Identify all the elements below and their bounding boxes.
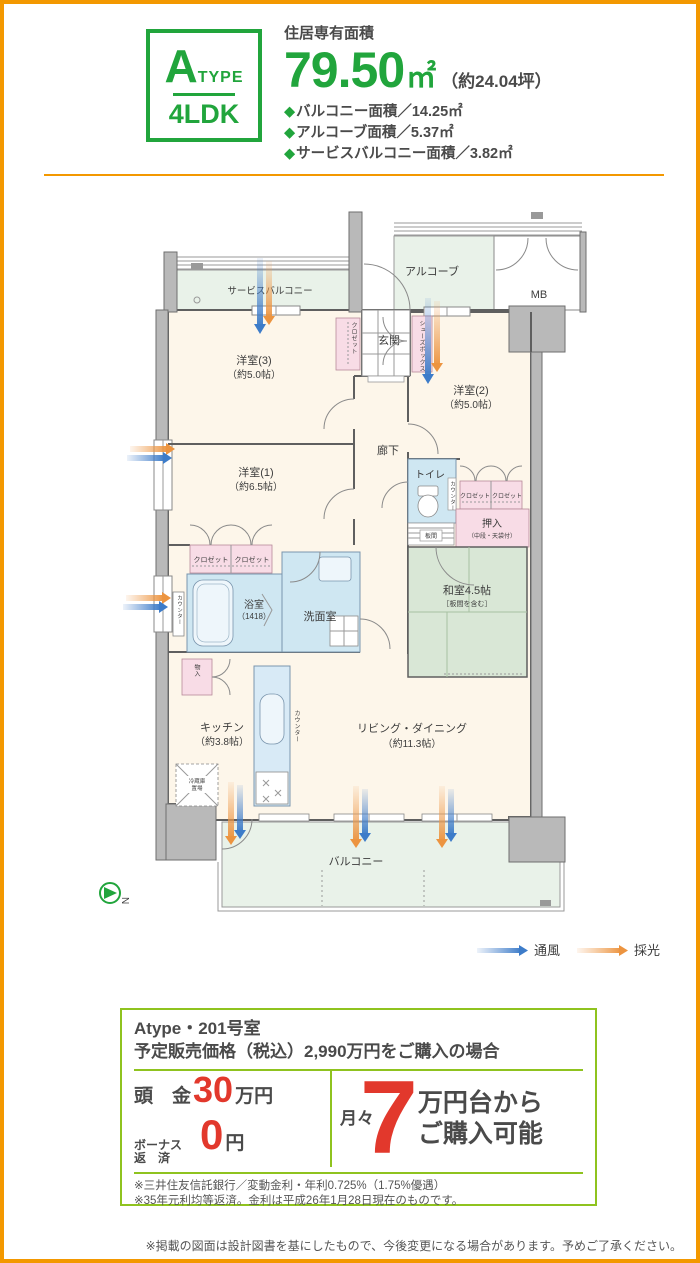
type-letter: A: [164, 43, 197, 89]
closet-label: クロゼット: [235, 555, 270, 564]
diamond-icon: ◆: [284, 125, 295, 141]
oshiire-note: （中段・天袋付）: [468, 532, 516, 540]
area-tsubo: （約24.04坪）: [441, 67, 552, 92]
living-size: （約11.3帖）: [383, 737, 442, 750]
room3-size: （約5.0帖）: [227, 368, 281, 381]
washitsu-room: 和室4.5帖 ［板間を含む］: [408, 547, 527, 677]
room3-name: 洋室(3): [236, 353, 271, 367]
oshiire-name: 押入: [482, 517, 502, 530]
oshiire: 押入 （中段・天袋付）: [456, 509, 529, 547]
washroom-label: 洗面室: [304, 609, 337, 623]
down-payment-label: 頭 金: [134, 1081, 191, 1108]
bullet-balcony: ◆バルコニー面積／14.25㎡: [284, 102, 552, 123]
room2-size: （約5.0帖）: [444, 398, 498, 411]
area-unit: ㎡: [406, 52, 436, 96]
closet-label: クロゼット: [350, 322, 357, 355]
bonus-label: ボーナス返 済: [134, 1139, 186, 1167]
balcony-label: バルコニー: [329, 855, 384, 868]
area-bullets: ◆バルコニー面積／14.25㎡ ◆アルコーブ面積／5.37㎡ ◆サービスバルコニ…: [284, 102, 552, 165]
price-room-line: Atype・201号室: [134, 1018, 583, 1041]
area-label: 住居専有面積: [284, 22, 552, 43]
entrance-label: 玄関: [378, 333, 400, 347]
footer-disclaimer: ※掲載の図面は設計図書を基にしたもので、今後変更になる場合があります。予めご了承…: [146, 1237, 682, 1254]
north-arrow-icon: N: [100, 883, 130, 904]
room1-size: （約6.5帖）: [229, 480, 283, 493]
monthly-text: 万円台から ご購入可能: [418, 1088, 543, 1151]
type-word: TYPE: [198, 69, 244, 87]
counter-label-toilet: カウンター: [449, 481, 456, 511]
storage-label: 物入: [193, 663, 200, 677]
price-title: Atype・201号室 予定販売価格（税込）2,990万円をご購入の場合: [134, 1018, 583, 1064]
monthly-value: 7: [360, 1076, 414, 1161]
area-value: 79.50: [284, 45, 404, 95]
living-name: リビング・ダイニング: [357, 721, 467, 735]
legend-light-label: 採光: [634, 943, 660, 958]
counter-label-west: カウンター: [176, 595, 183, 625]
area-row: 79.50 ㎡ （約24.04坪）: [284, 45, 552, 96]
flyer-page: A TYPE 4LDK 住居専有面積 79.50 ㎡ （約24.04坪） ◆バル…: [0, 0, 700, 1263]
down-payment-row: 頭 金 30 万円: [134, 1072, 330, 1108]
badge-divider: [173, 93, 235, 96]
bath-name: 浴室: [244, 598, 264, 611]
diamond-icon: ◆: [284, 104, 295, 120]
price-note-1: ※三井住友信託銀行／変動金利・年利0.725%（1.75%優遇）: [134, 1179, 583, 1194]
bonus-value: 0: [200, 1114, 223, 1156]
bullet-service-balcony: ◆サービスバルコニー面積／3.82㎡: [284, 144, 552, 165]
closet-label: クロゼット: [492, 492, 522, 500]
itama-label: 板間: [425, 532, 437, 540]
down-payment-unit: 万円: [235, 1081, 273, 1108]
counter-label-kitchen: カウンター: [293, 710, 300, 743]
bathroom: 浴室 （1418）: [187, 574, 282, 652]
diamond-icon: ◆: [284, 146, 295, 162]
bath-size: （1418）: [237, 612, 271, 621]
down-payment-value: 30: [193, 1072, 233, 1108]
fridge-space: 冷蔵庫 置場: [176, 764, 218, 806]
room2-name: 洋室(2): [453, 383, 488, 397]
bonus-unit: 円: [225, 1128, 244, 1155]
north-letter: N: [119, 897, 130, 904]
alcove-label: アルコーブ: [405, 264, 459, 278]
fridge-label-2: 置場: [191, 784, 203, 792]
closet-label: クロゼット: [460, 492, 490, 500]
kitchen-size: （約3.8帖）: [195, 735, 249, 748]
entrance-area: 玄関: [362, 310, 410, 382]
legend-wind-label: 通風: [534, 943, 560, 958]
washitsu-name: 和室4.5帖: [443, 583, 491, 597]
type-badge: A TYPE 4LDK: [146, 29, 262, 142]
floorplan-svg: カウンター 玄関 シューズボックス クロゼット 洋室(3) （約5.0帖） 洋室…: [99, 204, 674, 969]
price-box: Atype・201号室 予定販売価格（税込）2,990万円をご購入の場合 頭 金…: [120, 1008, 597, 1206]
layout-label: 4LDK: [169, 101, 240, 128]
itama-strip: 板間: [408, 523, 454, 545]
price-note-2: ※35年元利均等返済。金利は平成26年1月28日現在のものです。: [134, 1194, 583, 1209]
price-notes: ※三井住友信託銀行／変動金利・年利0.725%（1.75%優遇） ※35年元利均…: [134, 1179, 583, 1209]
area-info: 住居専有面積 79.50 ㎡ （約24.04坪） ◆バルコニー面積／14.25㎡…: [284, 22, 552, 165]
mb-label: MB: [531, 289, 548, 301]
kitchen-name: キッチン: [200, 721, 244, 734]
closet-label: クロゼット: [194, 555, 229, 564]
price-divider-bottom: [134, 1172, 583, 1174]
price-left-column: 頭 金 30 万円 ボーナス返 済 0 円: [134, 1071, 330, 1167]
price-condition-line: 予定販売価格（税込）2,990万円をご購入の場合: [134, 1041, 583, 1064]
fridge-label-1: 冷蔵庫: [189, 777, 206, 785]
washitsu-note: ［板間を含む］: [443, 599, 492, 608]
price-body: 頭 金 30 万円 ボーナス返 済 0 円 月々 7 万円台から: [134, 1071, 583, 1167]
orange-divider: [44, 174, 664, 176]
monthly-label: 月々: [340, 1110, 360, 1129]
price-right-column: 月々 7 万円台から ご購入可能: [332, 1071, 583, 1167]
bonus-row: ボーナス返 済 0 円: [134, 1114, 330, 1167]
toilet-label: トイレ: [415, 470, 445, 481]
type-badge-line: A TYPE: [164, 43, 243, 89]
room1-name: 洋室(1): [238, 465, 273, 479]
shoes-box-label: シューズボックス: [418, 320, 425, 372]
bullet-alcove: ◆アルコーブ面積／5.37㎡: [284, 123, 552, 144]
toilet-room: トイレ カウンター: [408, 459, 456, 523]
hallway-label: 廊下: [377, 443, 399, 457]
arrow-legend: 通風 採光: [477, 943, 660, 958]
